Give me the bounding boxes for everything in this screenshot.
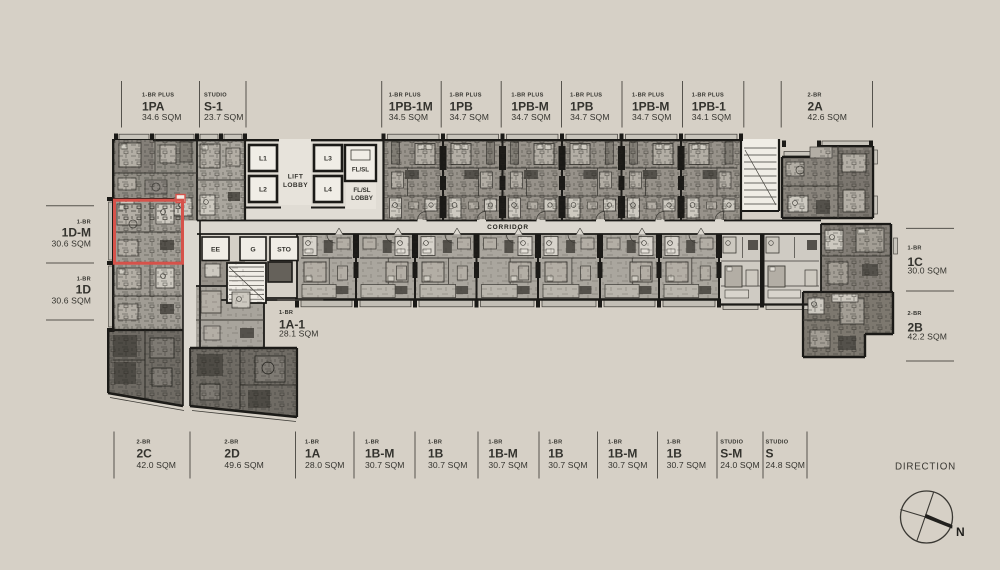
svg-text:2-BR: 2-BR	[137, 440, 151, 446]
svg-text:N: N	[956, 525, 965, 539]
svg-text:L1: L1	[259, 156, 267, 163]
svg-text:STUDIO: STUDIO	[204, 92, 227, 98]
svg-text:LOBBY: LOBBY	[351, 195, 374, 202]
svg-text:1A: 1A	[305, 447, 321, 461]
svg-text:24.8 SQM: 24.8 SQM	[766, 460, 806, 470]
svg-text:1-BR PLUS: 1-BR PLUS	[511, 92, 543, 98]
svg-text:1-BR: 1-BR	[428, 440, 442, 446]
svg-text:42.2 SQM: 42.2 SQM	[908, 331, 948, 341]
svg-text:G: G	[250, 247, 255, 254]
svg-text:1-BR: 1-BR	[667, 440, 681, 446]
svg-text:28.1 SQM: 28.1 SQM	[279, 328, 319, 338]
svg-text:1-BR PLUS: 1-BR PLUS	[570, 92, 602, 98]
svg-text:1B-M: 1B-M	[608, 447, 637, 461]
svg-text:30.7 SQM: 30.7 SQM	[667, 460, 707, 470]
svg-text:1-BR PLUS: 1-BR PLUS	[142, 92, 174, 98]
svg-text:42.6 SQM: 42.6 SQM	[808, 112, 848, 122]
svg-text:1-BR: 1-BR	[608, 440, 622, 446]
svg-text:2-BR: 2-BR	[808, 92, 822, 98]
svg-text:EE: EE	[211, 247, 221, 254]
svg-text:30.7 SQM: 30.7 SQM	[428, 460, 468, 470]
svg-text:2C: 2C	[137, 447, 153, 461]
svg-text:34.7 SQM: 34.7 SQM	[450, 112, 490, 122]
svg-text:S: S	[766, 447, 774, 461]
svg-text:1-BR PLUS: 1-BR PLUS	[389, 92, 421, 98]
svg-text:1D: 1D	[76, 283, 92, 297]
svg-text:LOBBY: LOBBY	[283, 182, 308, 189]
svg-text:2-BR: 2-BR	[224, 440, 238, 446]
svg-text:23.7 SQM: 23.7 SQM	[204, 112, 244, 122]
svg-text:LIFT: LIFT	[288, 174, 304, 181]
svg-text:1-BR: 1-BR	[908, 245, 922, 251]
svg-text:DIRECTION: DIRECTION	[895, 462, 956, 473]
svg-text:1-BR: 1-BR	[279, 310, 293, 316]
svg-text:1B: 1B	[428, 447, 444, 461]
svg-text:1-BR PLUS: 1-BR PLUS	[450, 92, 482, 98]
svg-text:1-BR: 1-BR	[365, 440, 379, 446]
svg-text:STUDIO: STUDIO	[766, 440, 789, 446]
svg-text:STUDIO: STUDIO	[720, 440, 743, 446]
svg-text:30.6 SQM: 30.6 SQM	[52, 239, 92, 249]
svg-text:30.7 SQM: 30.7 SQM	[548, 460, 588, 470]
svg-text:1D-M: 1D-M	[62, 226, 91, 240]
svg-text:STO: STO	[277, 247, 291, 254]
svg-text:CORRIDOR: CORRIDOR	[487, 224, 529, 231]
svg-text:L3: L3	[324, 156, 332, 163]
svg-text:1-BR PLUS: 1-BR PLUS	[632, 92, 664, 98]
svg-text:30.7 SQM: 30.7 SQM	[488, 460, 528, 470]
svg-text:34.5 SQM: 34.5 SQM	[389, 112, 429, 122]
svg-text:2-BR: 2-BR	[908, 311, 922, 317]
svg-text:30.0 SQM: 30.0 SQM	[908, 266, 948, 276]
svg-text:1B-M: 1B-M	[488, 447, 517, 461]
svg-text:34.7 SQM: 34.7 SQM	[511, 112, 551, 122]
svg-text:1-BR: 1-BR	[488, 440, 502, 446]
svg-text:30.6 SQM: 30.6 SQM	[52, 296, 92, 306]
svg-text:34.7 SQM: 34.7 SQM	[570, 112, 610, 122]
svg-text:30.7 SQM: 30.7 SQM	[365, 460, 405, 470]
svg-text:28.0 SQM: 28.0 SQM	[305, 460, 345, 470]
svg-text:34.6 SQM: 34.6 SQM	[142, 112, 182, 122]
svg-text:L4: L4	[324, 187, 332, 194]
svg-text:34.1 SQM: 34.1 SQM	[692, 112, 732, 122]
svg-text:1B: 1B	[667, 447, 683, 461]
svg-text:1-BR PLUS: 1-BR PLUS	[692, 92, 724, 98]
svg-text:24.0 SQM: 24.0 SQM	[720, 460, 760, 470]
svg-text:2D: 2D	[224, 447, 240, 461]
svg-text:1-BR: 1-BR	[305, 440, 319, 446]
svg-text:42.0 SQM: 42.0 SQM	[137, 460, 177, 470]
svg-text:49.6 SQM: 49.6 SQM	[224, 460, 264, 470]
svg-text:34.7 SQM: 34.7 SQM	[632, 112, 672, 122]
svg-text:FL/SL: FL/SL	[353, 187, 370, 194]
svg-text:L2: L2	[259, 187, 267, 194]
svg-text:1B-M: 1B-M	[365, 447, 394, 461]
svg-text:1B: 1B	[548, 447, 564, 461]
svg-text:S-M: S-M	[720, 447, 742, 461]
svg-text:FL/SL: FL/SL	[352, 167, 369, 174]
svg-text:30.7 SQM: 30.7 SQM	[608, 460, 648, 470]
svg-text:1-BR: 1-BR	[548, 440, 562, 446]
